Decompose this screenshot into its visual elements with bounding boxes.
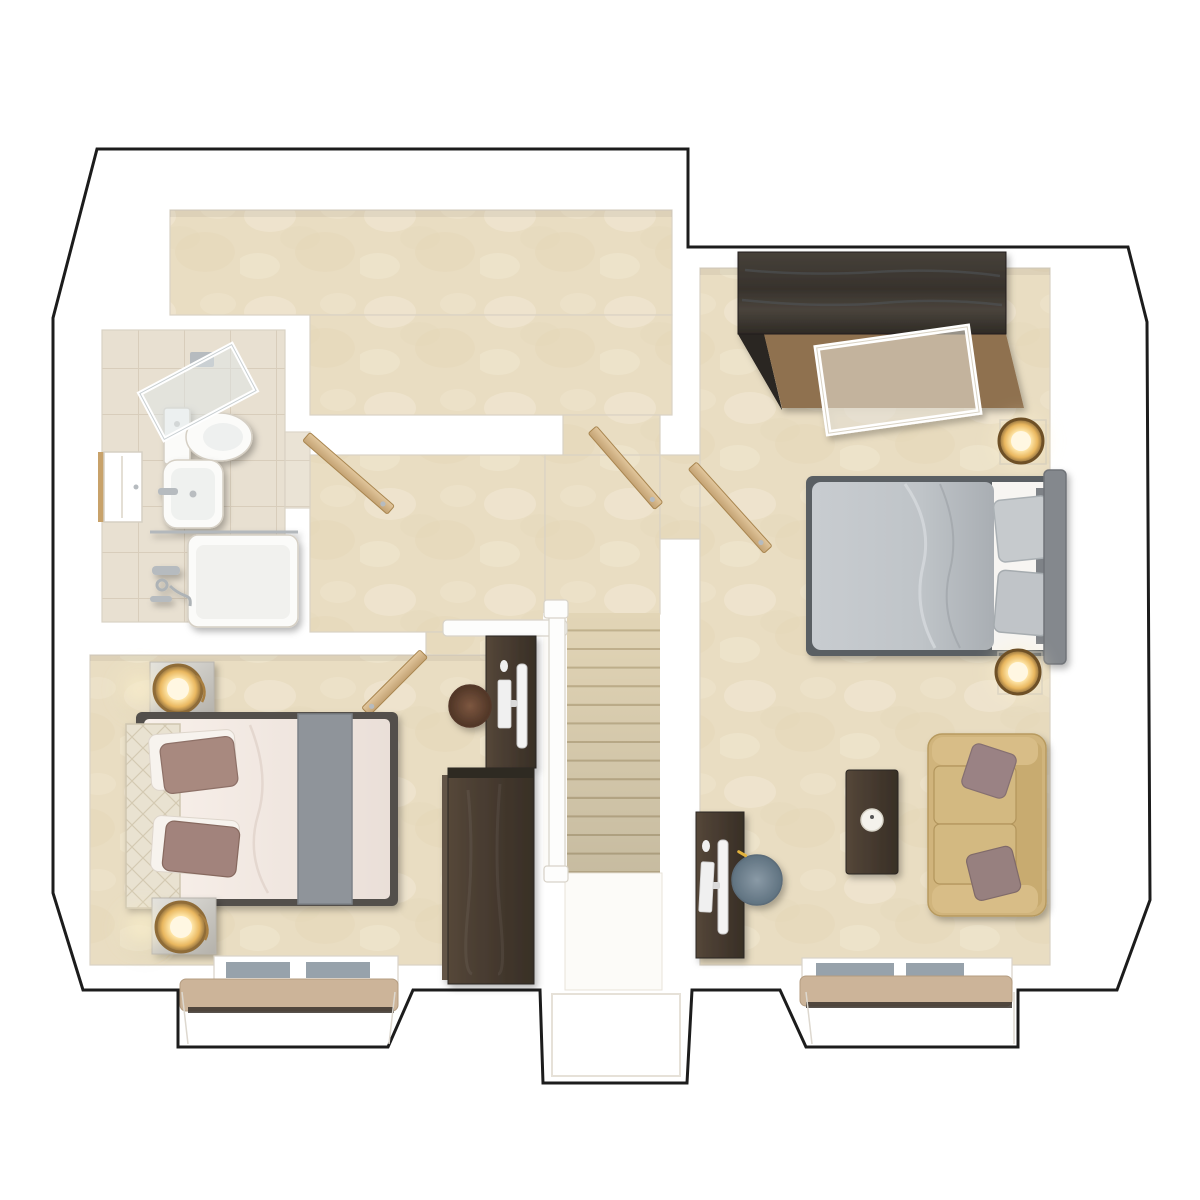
duvet-gray	[812, 482, 994, 650]
bedside-lamp-top-right	[987, 407, 1055, 475]
window-seat-cushion	[800, 976, 1012, 1006]
wardrobe-open-door	[817, 327, 979, 433]
wardrobe-body	[448, 768, 534, 984]
cabinet-handle	[134, 485, 139, 490]
window-pane	[306, 962, 370, 978]
sofa	[928, 734, 1046, 916]
wardrobe-right	[738, 252, 1024, 433]
lamp-bulb	[1008, 662, 1028, 682]
wardrobe-top-edge	[448, 768, 534, 778]
stair-lower-landing	[565, 873, 662, 990]
bedside-lamp-bottom-right	[984, 638, 1052, 706]
bath-mixer-tap	[152, 566, 180, 575]
bedside-cabinet-top-left	[110, 660, 214, 720]
keyboard	[699, 862, 715, 913]
basin-tap	[158, 488, 178, 495]
lamp-bulb	[170, 916, 192, 938]
newel-post-top	[544, 600, 568, 618]
wardrobe-left	[442, 768, 534, 984]
headboard	[1044, 470, 1066, 664]
candle	[861, 809, 883, 831]
landing-carpet-mid	[310, 315, 672, 415]
wash-basin	[158, 460, 223, 528]
bath-basin	[196, 545, 290, 619]
window-pane	[226, 962, 290, 978]
window-seat-edge	[806, 1002, 1012, 1008]
room-bathroom	[98, 330, 310, 627]
side-table	[846, 770, 898, 874]
bed-runner	[298, 714, 352, 904]
candle-wick	[870, 815, 874, 819]
lamp-bulb	[1011, 431, 1031, 451]
newel-post-bottom	[544, 866, 568, 882]
towel-bar	[150, 596, 172, 602]
window-seat-cushion	[180, 979, 398, 1011]
bed-left	[126, 712, 398, 908]
keyboard	[498, 680, 511, 728]
basin-drain	[190, 491, 197, 498]
wardrobe-top	[738, 252, 1006, 334]
wall-shadow	[90, 655, 532, 661]
mouse	[500, 660, 508, 672]
monitor-edge-on	[517, 664, 527, 748]
lamp-bulb	[167, 678, 189, 700]
floorplan-stage	[0, 0, 1200, 1200]
mirror-cabinet	[98, 452, 142, 522]
mouse	[702, 840, 710, 852]
landing-carpet-north	[170, 210, 672, 315]
stair-shading	[567, 613, 660, 873]
landing-corridor	[310, 455, 545, 632]
toilet-seat	[203, 423, 243, 451]
wall-shadow	[170, 210, 672, 217]
pillow-mauve-top	[159, 736, 239, 795]
bedside-cabinet-bottom-left	[112, 898, 216, 958]
bed-right	[806, 470, 1066, 664]
desk-chair-brown	[449, 685, 491, 727]
floorplan-svg	[0, 0, 1200, 1200]
pillow-mauve-bottom	[162, 820, 241, 877]
handrail	[549, 608, 565, 878]
window-seat-edge	[188, 1007, 394, 1013]
bay-window-right	[800, 958, 1012, 1008]
